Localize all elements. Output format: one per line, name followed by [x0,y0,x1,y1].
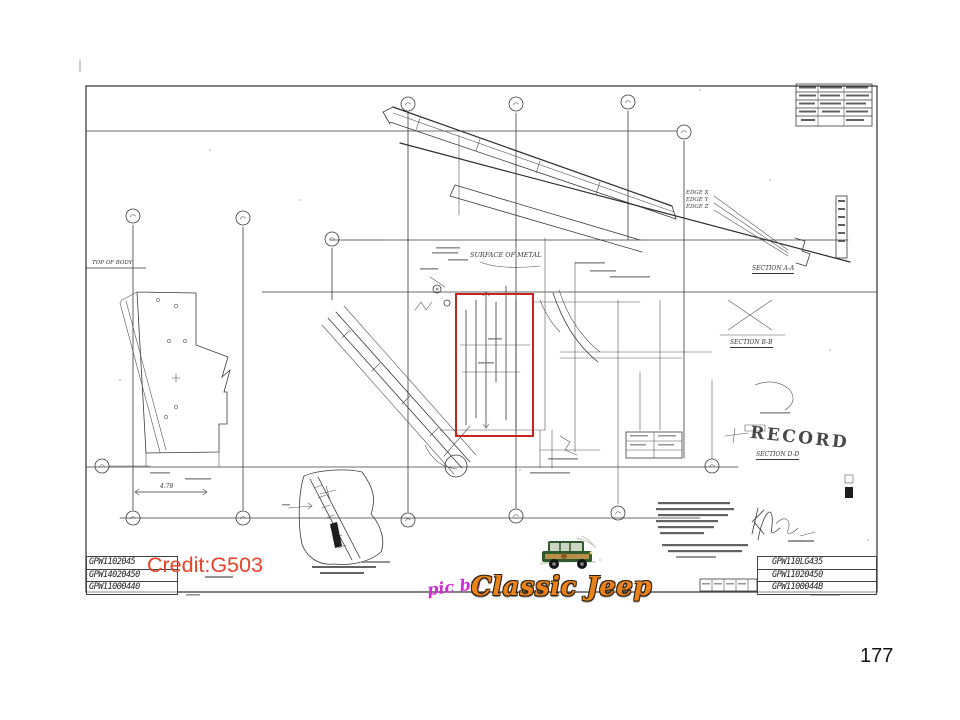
part-number: GPW11020450 [757,569,877,582]
balloon-callout [509,509,523,523]
dim-label: 4.78 [160,484,173,490]
section-bb-label: SECTION B-B [730,340,773,348]
torn-detail-view [282,470,390,574]
title-block-right: GPW110LG435 GPW11020450 GPW1100044B [757,556,877,595]
balloon-callout [126,209,140,223]
highlight-box [455,293,534,437]
section-dd-label: SECTION D-D [756,452,799,460]
balloon-callout [621,95,635,109]
balloon-callout [705,459,719,473]
part-number: GPW110LG435 [757,556,877,569]
revision-table [796,84,872,126]
slide: SURFACE OF METAL TOP OF BODY EDGE X EDGE… [0,0,960,720]
part-number: GPW1100044B [757,581,877,595]
left-part-outline [120,292,230,467]
edge-y-label: EDGE Y [686,198,708,204]
edge-z-label: EDGE Z [686,205,708,211]
balloon-callout [677,125,691,139]
balloon-callouts [95,95,719,527]
top-of-body-label: TOP OF BODY [92,261,132,267]
cowl-curves [540,290,600,362]
center-diagonal-band [322,306,476,477]
balloon-callout [509,97,523,111]
edge-x-label: EDGE X [686,191,709,197]
credit-text: Credit:G503 [147,553,263,578]
page-number: 177 [860,645,893,668]
balloon-callout [325,232,339,246]
part-number: GPW11000440 [86,581,178,595]
balloon-callout [236,211,250,225]
notes-squiggles [656,502,748,558]
brand-text: Classic Jeep [471,572,652,602]
balloon-callout [401,513,415,527]
surface-of-metal-label: SURFACE OF METAL [470,252,542,259]
main-diagonal-channel [383,107,850,262]
section-aa-label: SECTION A-A [752,266,794,274]
signature [752,508,815,542]
balloon-callout [95,459,109,473]
jeep-thumbnail [536,534,600,572]
balloon-callout [401,97,415,111]
bracket-detail [626,432,682,458]
